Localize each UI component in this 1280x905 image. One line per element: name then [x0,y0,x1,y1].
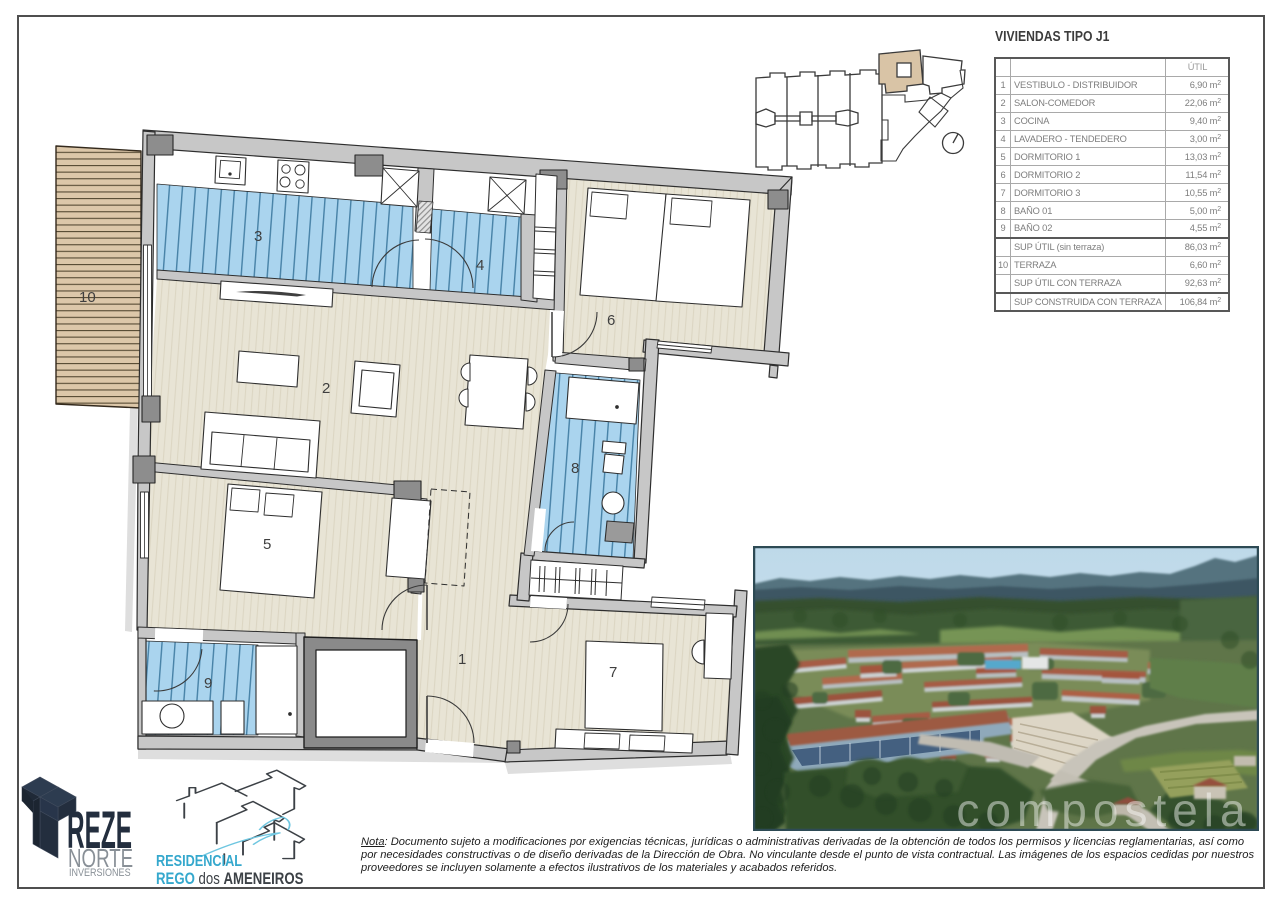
svg-text:1: 1 [458,651,466,668]
svg-text:3: 3 [254,228,262,245]
svg-text:2: 2 [322,380,330,397]
svg-text:INVERSIONES: INVERSIONES [69,867,131,879]
svg-text:RESIDENCIAL: RESIDENCIAL [156,853,242,870]
svg-text:7: 7 [609,664,617,681]
svg-text:REGO dos AMENEIROS: REGO dos AMENEIROS [156,870,303,889]
svg-text:compostela: compostela [956,784,1251,836]
svg-text:4: 4 [476,257,484,274]
svg-text:6: 6 [607,312,615,329]
svg-text:9: 9 [204,675,212,692]
svg-text:10: 10 [79,289,96,306]
svg-text:5: 5 [263,536,271,553]
svg-text:8: 8 [571,460,579,477]
